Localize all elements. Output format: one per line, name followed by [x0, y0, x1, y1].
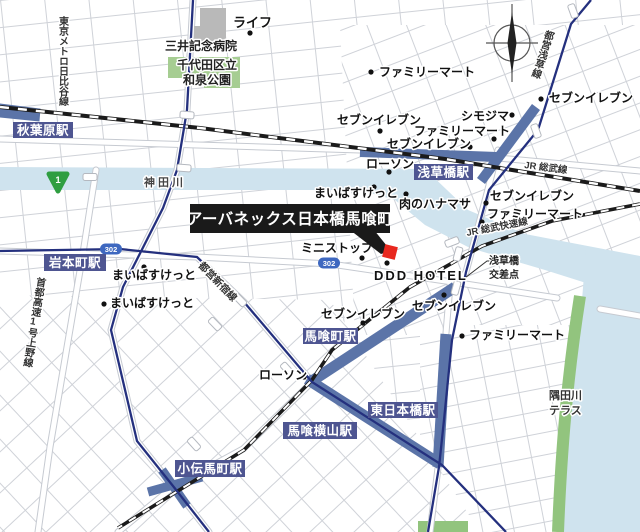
poi-label: ファミリーマート: [487, 207, 583, 221]
poi-label: DDD HOTEL: [374, 268, 468, 283]
poi-label: セブンイレブン: [337, 112, 421, 127]
poi-label: シモジマ: [461, 109, 509, 123]
station-name: 馬喰横山駅: [287, 423, 352, 438]
station-name: 秋葉原駅: [17, 123, 69, 138]
poi-label: まいばすけっと: [112, 267, 196, 282]
poi-dot: [459, 333, 464, 338]
green-strip-bottom: [418, 521, 468, 532]
poi-label: セブンイレブン: [387, 136, 471, 151]
area-label: 三井記念病院: [165, 38, 237, 53]
area-label: 交差点: [489, 268, 519, 281]
map-canvas: 1302302 ライフファミリーマートセブンイレブンシモジマセブンイレブンファミ…: [0, 0, 640, 532]
callout-text: アーバネックス日本橋馬喰町: [187, 209, 393, 228]
area-label: 隅田川: [549, 388, 582, 402]
poi-label: ローソン: [366, 157, 414, 171]
poi-dot: [538, 96, 543, 101]
poi-label: ライフ: [233, 15, 272, 30]
route-shield-number: 302: [323, 259, 336, 268]
poi-label: ファミリーマート: [414, 124, 510, 138]
poi-dot: [384, 260, 389, 265]
poi-dot: [101, 301, 106, 306]
area-label: 浅草橋: [489, 254, 520, 267]
poi-label: セブンイレブン: [412, 298, 496, 313]
poi-label: ファミリーマート: [379, 65, 475, 79]
station-name: 岩本町駅: [48, 255, 101, 270]
bridge-pill: [180, 111, 194, 119]
bridge-pill: [83, 174, 97, 181]
poi-dot: [483, 200, 488, 205]
poi-label: 肉のハナマサ: [399, 196, 471, 211]
poi-dot: [360, 320, 365, 325]
poi-dot: [441, 292, 446, 297]
poi-dot: [509, 112, 514, 117]
poi-dot: [359, 255, 364, 260]
station-name: 小伝馬町駅: [176, 461, 242, 476]
poi-label: セブンイレブン: [549, 90, 633, 105]
poi-label: セブンイレブン: [490, 188, 574, 203]
station-name: 東日本橋駅: [370, 403, 435, 418]
poi-dot: [377, 128, 382, 133]
route-shield-number: 302: [105, 245, 118, 254]
poi-label: セブンイレブン: [321, 306, 405, 321]
poi-label: まいばすけっと: [314, 185, 398, 200]
area-label: 千代田区立: [177, 57, 237, 72]
poi-label: ローソン: [259, 368, 307, 382]
bridge-pill: [177, 164, 191, 172]
area-label: 和泉公園: [182, 72, 231, 87]
transit-line-label: 東京メトロ日比谷線: [57, 15, 69, 107]
poi-dot: [368, 69, 373, 74]
map-svg: 1302302 ライフファミリーマートセブンイレブンシモジマセブンイレブンファミ…: [0, 0, 640, 532]
poi-label: ミニストップ: [301, 240, 374, 255]
poi-label: まいばすけっと: [110, 295, 194, 310]
poi-label: ファミリーマート: [469, 328, 565, 342]
poi-dot: [247, 30, 252, 35]
area-label: テラス: [549, 404, 582, 417]
station-name: 馬喰町駅: [304, 329, 356, 344]
route-shield-number: 1: [55, 175, 61, 186]
station-name: 浅草橋駅: [417, 165, 469, 180]
area-label: 神田川: [144, 175, 186, 189]
poi-dot: [403, 191, 408, 196]
